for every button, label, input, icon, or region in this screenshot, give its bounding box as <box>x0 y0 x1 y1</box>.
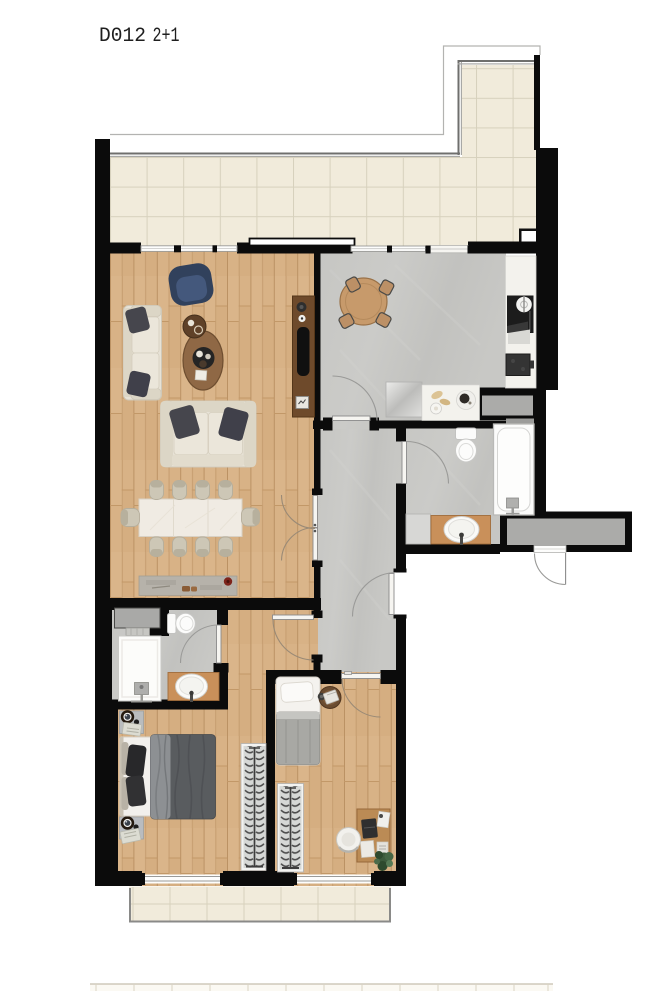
svg-text:D012: D012 <box>99 25 146 48</box>
svg-text:2+1: 2+1 <box>153 25 180 48</box>
